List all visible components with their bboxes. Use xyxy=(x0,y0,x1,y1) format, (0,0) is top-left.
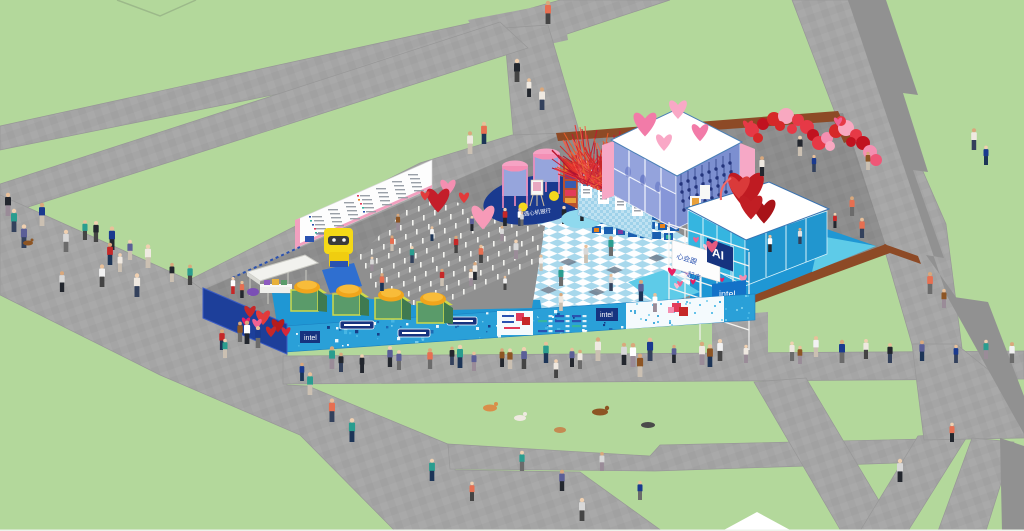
svg-text:intel: intel xyxy=(600,312,613,319)
svg-text:intel: intel xyxy=(304,335,317,342)
